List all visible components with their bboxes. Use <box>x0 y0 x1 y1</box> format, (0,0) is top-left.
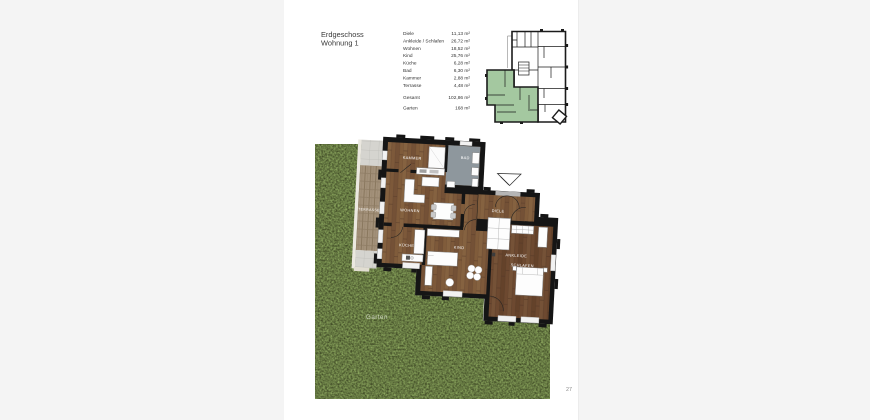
svg-text:18,52 m²: 18,52 m² <box>451 46 470 52</box>
svg-text:Kammer: Kammer <box>403 75 422 81</box>
svg-text:Garten: Garten <box>403 105 418 111</box>
svg-text:BAD: BAD <box>461 155 470 160</box>
svg-text:6,28 m²: 6,28 m² <box>454 61 471 67</box>
svg-text:KIND: KIND <box>454 245 465 251</box>
svg-text:WOHNEN: WOHNEN <box>400 207 420 213</box>
svg-text:Küche: Küche <box>403 61 417 67</box>
svg-text:26,72 m²: 26,72 m² <box>451 38 470 44</box>
svg-text:168 m²: 168 m² <box>455 105 470 111</box>
svg-text:DIELE: DIELE <box>492 208 505 214</box>
svg-text:11,13 m²: 11,13 m² <box>451 31 470 37</box>
svg-text:6,30 m²: 6,30 m² <box>454 68 471 74</box>
svg-text:27: 27 <box>566 387 572 393</box>
svg-text:25,76 m²: 25,76 m² <box>451 53 470 59</box>
svg-text:Ankleide / Schlafen: Ankleide / Schlafen <box>403 38 444 44</box>
svg-text:Diele: Diele <box>403 31 414 37</box>
svg-text:Kind: Kind <box>403 53 413 59</box>
svg-text:Wohnung 1: Wohnung 1 <box>321 38 359 47</box>
svg-text:Garten: Garten <box>366 314 388 321</box>
svg-text:Bad: Bad <box>403 68 412 74</box>
svg-text:Terrasse: Terrasse <box>403 83 422 89</box>
svg-text:KÜCHE: KÜCHE <box>399 242 414 248</box>
svg-text:2,88 m²: 2,88 m² <box>454 75 471 81</box>
svg-text:4,48 m²: 4,48 m² <box>454 83 471 89</box>
svg-text:KAMMER: KAMMER <box>403 155 422 161</box>
svg-text:102,86 m²: 102,86 m² <box>448 95 470 101</box>
svg-text:Gesamt: Gesamt <box>403 95 420 101</box>
svg-text:Wohnen: Wohnen <box>403 46 421 52</box>
